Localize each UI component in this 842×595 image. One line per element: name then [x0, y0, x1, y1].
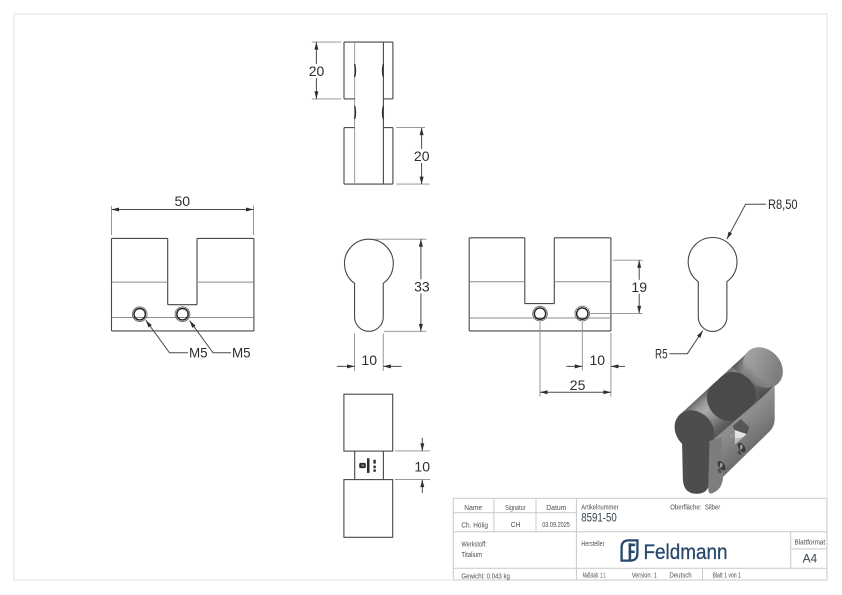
svg-text:Gewicht: 0.043 kg: Gewicht: 0.043 kg: [461, 571, 510, 580]
svg-text:R5: R5: [655, 346, 668, 361]
svg-text:03.09.2025: 03.09.2025: [542, 520, 570, 529]
svg-text:8591-50: 8591-50: [581, 511, 617, 525]
svg-text:Feldmann: Feldmann: [644, 540, 728, 564]
svg-text:Name: Name: [464, 503, 482, 512]
svg-text:Version: 1: Version: 1: [632, 570, 657, 579]
svg-text:Blatt 1 von 1: Blatt 1 von 1: [713, 570, 741, 579]
svg-text:Signatur: Signatur: [505, 503, 526, 512]
svg-text:Datum: Datum: [546, 503, 566, 512]
svg-text:10: 10: [590, 352, 606, 368]
svg-text:CH: CH: [511, 520, 521, 529]
svg-text:Blattformat: Blattformat: [795, 538, 826, 547]
svg-text:A4: A4: [803, 552, 818, 566]
svg-text:Ch. Hölig: Ch. Hölig: [461, 521, 488, 530]
svg-text:Titalium: Titalium: [461, 550, 482, 559]
svg-text:Hersteller: Hersteller: [581, 539, 604, 548]
svg-text:25: 25: [570, 377, 586, 393]
svg-text:Oberfläche: Silber: Oberfläche: Silber: [670, 503, 720, 512]
svg-text:R8,50: R8,50: [768, 197, 798, 212]
svg-text:M5: M5: [232, 345, 251, 360]
svg-text:20: 20: [414, 148, 430, 164]
svg-text:10: 10: [414, 458, 430, 474]
svg-text:Deutsch: Deutsch: [669, 570, 691, 579]
svg-text:50: 50: [175, 193, 191, 209]
svg-text:Werkstoff:: Werkstoff:: [461, 540, 486, 549]
svg-text:Maßstab: 1:1: Maßstab: 1:1: [583, 570, 606, 579]
svg-text:19: 19: [631, 279, 647, 295]
svg-text:33: 33: [414, 278, 430, 294]
svg-text:10: 10: [361, 352, 377, 368]
svg-text:M5: M5: [189, 345, 208, 360]
svg-text:20: 20: [309, 63, 325, 79]
